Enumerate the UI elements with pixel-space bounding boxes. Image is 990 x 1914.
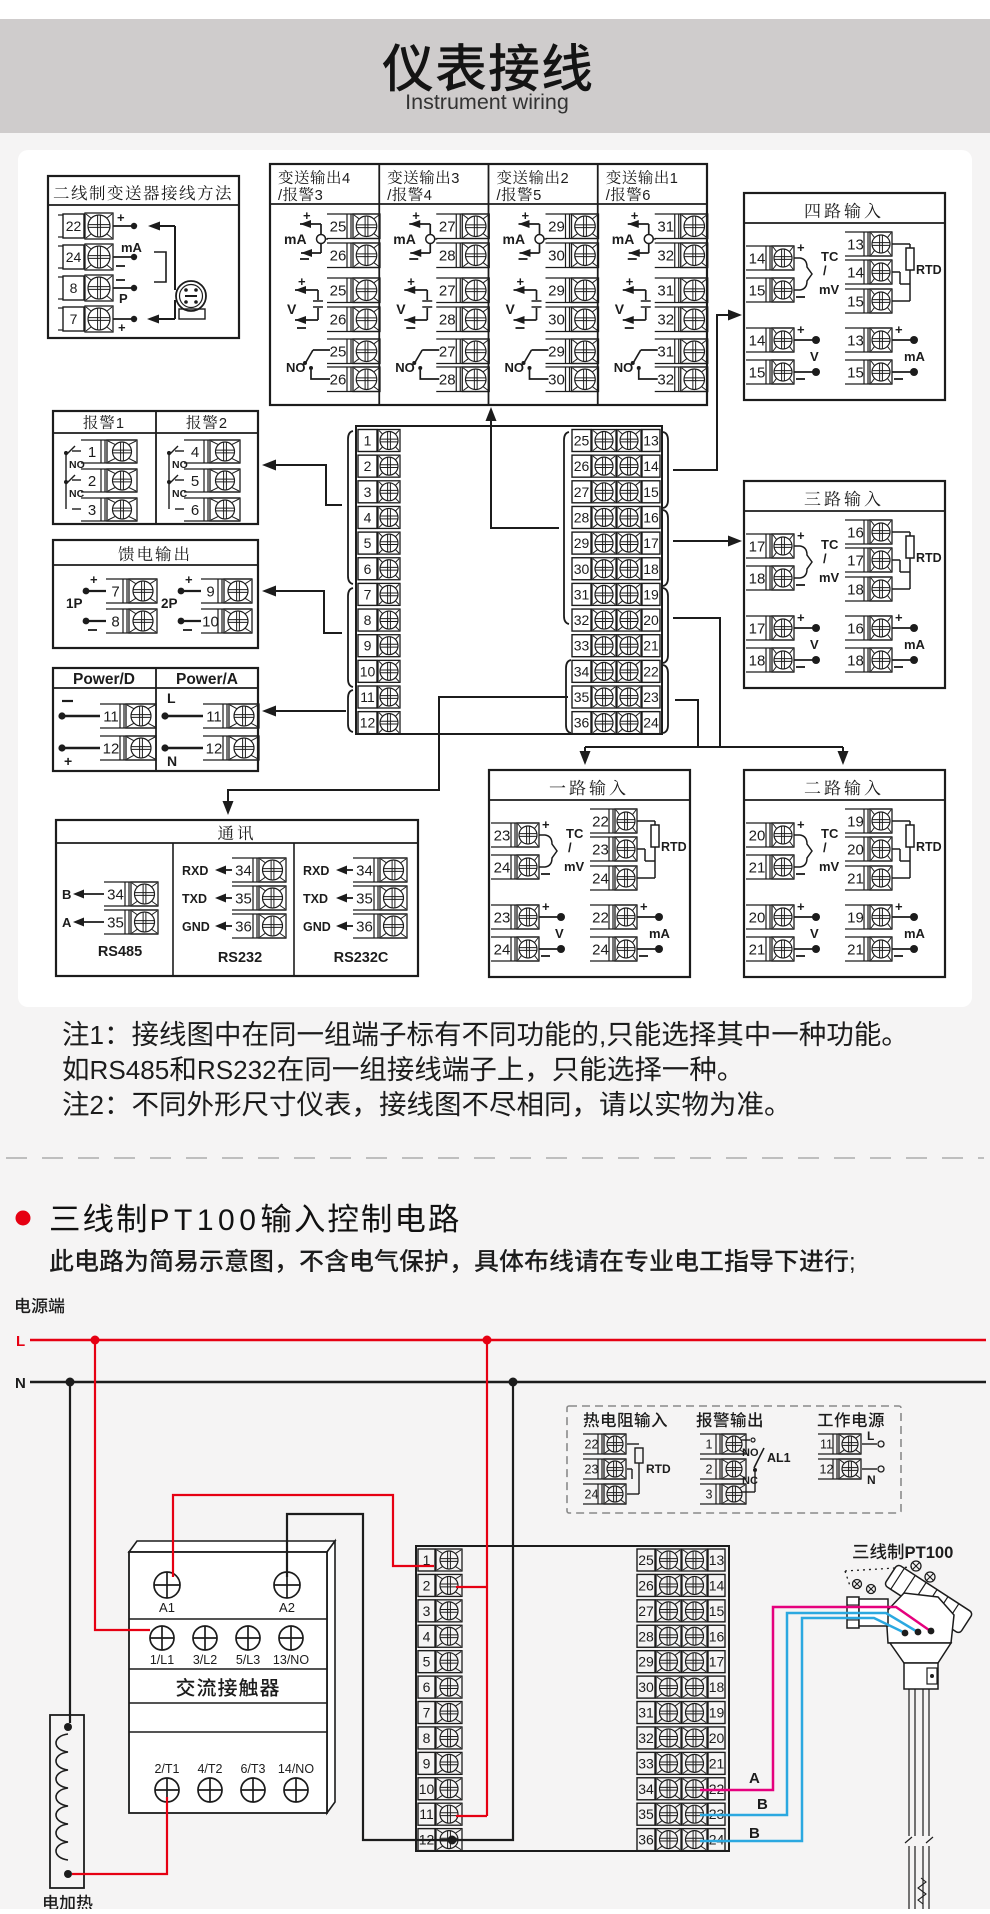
svg-text:25: 25 bbox=[330, 344, 347, 361]
svg-text:PT100: PT100 bbox=[150, 1204, 261, 1237]
svg-text:6: 6 bbox=[423, 1679, 431, 1695]
svg-text:2: 2 bbox=[423, 1577, 431, 1593]
svg-text:+: + bbox=[797, 817, 805, 832]
svg-text:RS485: RS485 bbox=[90, 1055, 170, 1085]
svg-text:28: 28 bbox=[439, 312, 456, 329]
svg-text:2/T1: 2/T1 bbox=[154, 1762, 179, 1776]
svg-text:8: 8 bbox=[423, 1730, 431, 1746]
svg-text:11: 11 bbox=[419, 1806, 434, 1822]
svg-text:15: 15 bbox=[847, 364, 864, 381]
svg-text:6: 6 bbox=[191, 502, 199, 519]
svg-text:+: + bbox=[117, 210, 125, 225]
svg-text:mA: mA bbox=[649, 926, 671, 941]
svg-text:18: 18 bbox=[709, 1679, 725, 1695]
svg-text:20: 20 bbox=[709, 1730, 725, 1746]
svg-text:mA: mA bbox=[121, 240, 143, 255]
svg-text:TC: TC bbox=[821, 826, 839, 841]
svg-text:18: 18 bbox=[643, 561, 659, 577]
svg-text:1: 1 bbox=[88, 444, 96, 461]
svg-text:B: B bbox=[757, 1796, 768, 1813]
svg-text:32: 32 bbox=[574, 612, 590, 628]
svg-text:12: 12 bbox=[103, 740, 120, 757]
svg-text:24: 24 bbox=[494, 859, 511, 876]
svg-text:RS485: RS485 bbox=[98, 944, 142, 960]
svg-text:+: + bbox=[90, 572, 98, 587]
svg-text:/: / bbox=[278, 188, 283, 204]
svg-text:31: 31 bbox=[657, 283, 674, 300]
svg-text:NO: NO bbox=[172, 459, 188, 471]
svg-text:17: 17 bbox=[709, 1654, 725, 1670]
svg-text:28: 28 bbox=[439, 372, 456, 389]
svg-text:L: L bbox=[167, 690, 176, 706]
svg-text:3: 3 bbox=[88, 502, 96, 519]
svg-text:24: 24 bbox=[494, 941, 511, 958]
svg-text:11: 11 bbox=[820, 1438, 833, 1452]
svg-text:4: 4 bbox=[342, 171, 351, 187]
svg-text:mA: mA bbox=[904, 926, 926, 941]
svg-text:17: 17 bbox=[749, 538, 766, 555]
svg-text:2P: 2P bbox=[161, 596, 178, 611]
svg-text:1: 1 bbox=[90, 1020, 105, 1050]
svg-text:27: 27 bbox=[574, 484, 590, 500]
svg-text:10: 10 bbox=[360, 663, 376, 679]
svg-text:/: / bbox=[606, 188, 611, 204]
svg-text:/: / bbox=[497, 188, 502, 204]
svg-text:4: 4 bbox=[424, 188, 433, 204]
svg-text:GND: GND bbox=[303, 920, 331, 934]
svg-text:+: + bbox=[412, 208, 420, 223]
svg-text:3/L2: 3/L2 bbox=[193, 1653, 217, 1667]
svg-text:+: + bbox=[797, 528, 805, 543]
svg-text:7: 7 bbox=[423, 1705, 431, 1721]
svg-text:RTD: RTD bbox=[916, 551, 942, 565]
svg-text:3: 3 bbox=[706, 1488, 713, 1502]
svg-text:31: 31 bbox=[638, 1705, 654, 1721]
svg-text:32: 32 bbox=[657, 372, 674, 389]
svg-text:9: 9 bbox=[364, 638, 372, 654]
svg-text:RTD: RTD bbox=[916, 840, 942, 854]
svg-text:7: 7 bbox=[111, 583, 119, 600]
svg-text:16: 16 bbox=[709, 1628, 725, 1644]
svg-text:8: 8 bbox=[111, 613, 119, 630]
svg-text:24: 24 bbox=[585, 1488, 599, 1502]
svg-text:11: 11 bbox=[206, 708, 222, 725]
svg-text:4/T2: 4/T2 bbox=[197, 1762, 222, 1776]
svg-text:TXD: TXD bbox=[303, 892, 328, 906]
svg-text:30: 30 bbox=[548, 248, 565, 265]
svg-text:26: 26 bbox=[638, 1577, 654, 1593]
svg-text:17: 17 bbox=[749, 620, 766, 637]
svg-text:6: 6 bbox=[642, 188, 651, 204]
svg-text:,: , bbox=[599, 1020, 606, 1050]
svg-text:+: + bbox=[797, 899, 805, 914]
svg-text:mV: mV bbox=[564, 859, 585, 874]
svg-text:+: + bbox=[118, 320, 126, 335]
svg-text:29: 29 bbox=[548, 219, 565, 236]
svg-text:29: 29 bbox=[574, 535, 590, 551]
svg-text:V: V bbox=[555, 926, 564, 941]
svg-text:21: 21 bbox=[749, 859, 766, 876]
svg-text:15: 15 bbox=[643, 484, 659, 500]
svg-text:V: V bbox=[615, 301, 625, 317]
svg-text:23: 23 bbox=[592, 841, 609, 858]
svg-text:V: V bbox=[396, 301, 406, 317]
svg-text:26: 26 bbox=[330, 312, 347, 329]
svg-text:34: 34 bbox=[107, 886, 124, 903]
svg-text:2: 2 bbox=[88, 473, 96, 490]
svg-text:30: 30 bbox=[548, 312, 565, 329]
svg-text:17: 17 bbox=[643, 535, 659, 551]
svg-text:25: 25 bbox=[638, 1552, 654, 1568]
svg-text:TC: TC bbox=[821, 249, 839, 264]
svg-text:+: + bbox=[626, 274, 634, 289]
svg-text:24: 24 bbox=[709, 1832, 725, 1848]
svg-text:22: 22 bbox=[592, 813, 609, 830]
svg-text:+: + bbox=[895, 322, 903, 337]
svg-text:28: 28 bbox=[439, 248, 456, 265]
svg-text:1: 1 bbox=[116, 416, 125, 432]
svg-text:36: 36 bbox=[235, 918, 252, 935]
svg-text:N: N bbox=[867, 1473, 876, 1487]
svg-text:+: + bbox=[640, 899, 648, 914]
svg-text:14: 14 bbox=[709, 1577, 725, 1593]
svg-text:30: 30 bbox=[574, 561, 590, 577]
svg-text:36: 36 bbox=[638, 1832, 654, 1848]
svg-text:+: + bbox=[517, 274, 525, 289]
svg-text:/: / bbox=[387, 188, 392, 204]
svg-text:22: 22 bbox=[643, 663, 659, 679]
svg-text:24: 24 bbox=[592, 941, 609, 958]
svg-text:10: 10 bbox=[202, 613, 219, 630]
svg-text:A: A bbox=[62, 915, 72, 930]
svg-text:V: V bbox=[506, 301, 516, 317]
svg-text:V: V bbox=[810, 926, 819, 941]
svg-text:RXD: RXD bbox=[182, 864, 208, 878]
svg-text:28: 28 bbox=[638, 1628, 654, 1644]
svg-text:3: 3 bbox=[423, 1603, 431, 1619]
svg-text:23: 23 bbox=[643, 689, 659, 705]
svg-text:mA: mA bbox=[904, 637, 926, 652]
svg-text:B: B bbox=[62, 887, 71, 902]
svg-text:NO: NO bbox=[505, 360, 525, 375]
svg-text:+: + bbox=[303, 208, 311, 223]
svg-text:32: 32 bbox=[638, 1730, 654, 1746]
svg-text:25: 25 bbox=[330, 219, 347, 236]
svg-text:TC: TC bbox=[566, 826, 584, 841]
svg-text:10: 10 bbox=[419, 1781, 435, 1797]
svg-text:16: 16 bbox=[847, 620, 864, 637]
svg-text:22: 22 bbox=[585, 1438, 599, 1452]
svg-text:RS232C: RS232C bbox=[334, 950, 389, 966]
svg-text:+: + bbox=[542, 899, 550, 914]
svg-text:+: + bbox=[185, 572, 193, 587]
svg-text:27: 27 bbox=[439, 283, 456, 300]
svg-text:14: 14 bbox=[643, 458, 659, 474]
svg-text:/: / bbox=[823, 263, 827, 278]
svg-text:/: / bbox=[568, 840, 572, 855]
svg-text:13: 13 bbox=[643, 433, 659, 449]
svg-text:36: 36 bbox=[574, 715, 590, 731]
svg-text:20: 20 bbox=[847, 841, 864, 858]
svg-text:4: 4 bbox=[423, 1628, 431, 1644]
svg-text:2: 2 bbox=[364, 458, 372, 474]
svg-text:18: 18 bbox=[749, 570, 766, 587]
svg-text:+: + bbox=[522, 208, 530, 223]
svg-text:A1: A1 bbox=[159, 1600, 175, 1615]
svg-text:16: 16 bbox=[847, 524, 864, 541]
svg-text:P: P bbox=[119, 291, 128, 306]
svg-text:1: 1 bbox=[706, 1438, 713, 1452]
svg-text:21: 21 bbox=[749, 941, 766, 958]
svg-text:29: 29 bbox=[638, 1654, 654, 1670]
svg-text:4: 4 bbox=[364, 509, 372, 525]
svg-text:NO: NO bbox=[395, 360, 415, 375]
svg-text:/: / bbox=[823, 840, 827, 855]
svg-text:25: 25 bbox=[330, 283, 347, 300]
svg-text:35: 35 bbox=[356, 890, 373, 907]
svg-text:1: 1 bbox=[364, 433, 372, 449]
svg-text:23: 23 bbox=[494, 827, 511, 844]
svg-text:5: 5 bbox=[364, 535, 372, 551]
svg-text:L: L bbox=[16, 1333, 25, 1350]
svg-text:18: 18 bbox=[847, 652, 864, 669]
svg-text:1: 1 bbox=[670, 171, 679, 187]
svg-text:NO: NO bbox=[614, 360, 634, 375]
svg-text:20: 20 bbox=[643, 612, 659, 628]
svg-text:12: 12 bbox=[360, 715, 376, 731]
svg-text:15: 15 bbox=[847, 293, 864, 310]
svg-text:+: + bbox=[407, 274, 415, 289]
svg-text:PT100: PT100 bbox=[905, 1543, 954, 1562]
svg-text:Power/A: Power/A bbox=[176, 671, 238, 688]
svg-text:NO: NO bbox=[69, 459, 85, 471]
svg-text:13: 13 bbox=[709, 1552, 725, 1568]
svg-text:15: 15 bbox=[749, 364, 766, 381]
svg-text:31: 31 bbox=[574, 586, 590, 602]
svg-text:21: 21 bbox=[847, 941, 864, 958]
svg-text:GND: GND bbox=[182, 920, 210, 934]
svg-text:5: 5 bbox=[533, 188, 542, 204]
svg-text:24: 24 bbox=[643, 715, 659, 731]
svg-text:mA: mA bbox=[393, 231, 416, 247]
svg-text:13: 13 bbox=[847, 332, 864, 349]
svg-text:mV: mV bbox=[819, 570, 840, 585]
svg-text:19: 19 bbox=[847, 813, 864, 830]
svg-text:2: 2 bbox=[90, 1090, 105, 1120]
svg-text:32: 32 bbox=[657, 248, 674, 265]
svg-text:14: 14 bbox=[749, 332, 766, 349]
svg-text:A2: A2 bbox=[279, 1600, 295, 1615]
svg-text:29: 29 bbox=[548, 344, 565, 361]
svg-text:27: 27 bbox=[439, 219, 456, 236]
svg-text:RTD: RTD bbox=[661, 840, 687, 854]
svg-text:36: 36 bbox=[356, 918, 373, 935]
svg-text:14/NO: 14/NO bbox=[278, 1762, 314, 1776]
svg-text:V: V bbox=[287, 301, 297, 317]
svg-text:5/L3: 5/L3 bbox=[236, 1653, 260, 1667]
svg-text:19: 19 bbox=[709, 1705, 725, 1721]
svg-text:+: + bbox=[895, 610, 903, 625]
svg-text:mA: mA bbox=[503, 231, 526, 247]
svg-text:3: 3 bbox=[315, 188, 324, 204]
svg-text:15: 15 bbox=[709, 1603, 725, 1619]
svg-text:21: 21 bbox=[643, 638, 659, 654]
svg-text:5: 5 bbox=[423, 1654, 431, 1670]
svg-text:2: 2 bbox=[706, 1463, 713, 1477]
svg-text:8: 8 bbox=[364, 612, 372, 628]
svg-text:13/NO: 13/NO bbox=[273, 1653, 309, 1667]
svg-text:N: N bbox=[15, 1375, 26, 1392]
svg-text:3: 3 bbox=[451, 171, 460, 187]
svg-text:8: 8 bbox=[70, 280, 78, 296]
svg-text:2: 2 bbox=[219, 416, 228, 432]
svg-text:19: 19 bbox=[643, 586, 659, 602]
svg-text:20: 20 bbox=[749, 827, 766, 844]
svg-text:30: 30 bbox=[548, 372, 565, 389]
svg-text:+: + bbox=[797, 240, 805, 255]
svg-text:22: 22 bbox=[592, 909, 609, 926]
svg-text:RTD: RTD bbox=[916, 263, 942, 277]
svg-text:mV: mV bbox=[819, 859, 840, 874]
svg-text:1/L1: 1/L1 bbox=[150, 1653, 174, 1667]
svg-text:mA: mA bbox=[284, 231, 307, 247]
svg-text:9: 9 bbox=[423, 1755, 431, 1771]
svg-text:;: ; bbox=[849, 1249, 856, 1276]
svg-text:30: 30 bbox=[638, 1679, 654, 1695]
svg-text:17: 17 bbox=[847, 552, 864, 569]
svg-text:34: 34 bbox=[638, 1781, 654, 1797]
svg-text:35: 35 bbox=[107, 914, 124, 931]
svg-text:mA: mA bbox=[612, 231, 635, 247]
svg-text:1P: 1P bbox=[66, 596, 83, 611]
svg-text:23: 23 bbox=[585, 1463, 599, 1477]
svg-text:34: 34 bbox=[574, 663, 590, 679]
svg-text:35: 35 bbox=[638, 1806, 654, 1822]
svg-text:/: / bbox=[823, 551, 827, 566]
svg-text:11: 11 bbox=[103, 708, 119, 725]
svg-text:29: 29 bbox=[548, 283, 565, 300]
svg-text:13: 13 bbox=[847, 236, 864, 253]
svg-text:+: + bbox=[631, 208, 639, 223]
svg-text:+: + bbox=[895, 899, 903, 914]
svg-text:RXD: RXD bbox=[303, 864, 329, 878]
svg-text:26: 26 bbox=[330, 372, 347, 389]
svg-text:33: 33 bbox=[574, 638, 590, 654]
svg-text:L: L bbox=[867, 1429, 874, 1443]
svg-text:27: 27 bbox=[439, 344, 456, 361]
svg-text:11: 11 bbox=[360, 689, 375, 705]
svg-text:24: 24 bbox=[66, 249, 82, 265]
svg-text:23: 23 bbox=[494, 909, 511, 926]
svg-text:19: 19 bbox=[847, 909, 864, 926]
svg-text:A: A bbox=[749, 1770, 760, 1787]
svg-text:12: 12 bbox=[206, 740, 223, 757]
svg-text:RS232: RS232 bbox=[218, 950, 262, 966]
svg-text:21: 21 bbox=[709, 1755, 725, 1771]
svg-text:mV: mV bbox=[819, 282, 840, 297]
svg-text:33: 33 bbox=[638, 1755, 654, 1771]
svg-text:35: 35 bbox=[574, 689, 590, 705]
svg-text:24: 24 bbox=[592, 870, 609, 887]
svg-text:18: 18 bbox=[847, 581, 864, 598]
svg-text:7: 7 bbox=[70, 311, 78, 327]
svg-text:35: 35 bbox=[235, 890, 252, 907]
svg-text:14: 14 bbox=[847, 264, 864, 281]
svg-text:Instrument wiring: Instrument wiring bbox=[405, 90, 569, 114]
svg-text:34: 34 bbox=[235, 862, 252, 879]
svg-text:NO: NO bbox=[742, 1447, 759, 1459]
svg-text:NC: NC bbox=[69, 488, 85, 500]
svg-text:18: 18 bbox=[749, 652, 766, 669]
svg-text:+: + bbox=[64, 753, 72, 769]
svg-text:9: 9 bbox=[206, 583, 214, 600]
svg-text:15: 15 bbox=[749, 282, 766, 299]
svg-text:5: 5 bbox=[191, 473, 199, 490]
svg-text:RS232: RS232 bbox=[197, 1055, 277, 1085]
svg-text:mA: mA bbox=[904, 349, 926, 364]
svg-text:28: 28 bbox=[574, 509, 590, 525]
svg-text:NO: NO bbox=[286, 360, 306, 375]
svg-text:3: 3 bbox=[364, 484, 372, 500]
svg-text:34: 34 bbox=[356, 862, 373, 879]
svg-text:31: 31 bbox=[657, 344, 674, 361]
svg-text:26: 26 bbox=[330, 248, 347, 265]
svg-text:B: B bbox=[749, 1825, 760, 1842]
svg-text:Power/D: Power/D bbox=[73, 671, 135, 688]
svg-text:6: 6 bbox=[364, 561, 372, 577]
svg-text:NC: NC bbox=[172, 488, 188, 500]
svg-text:25: 25 bbox=[574, 433, 590, 449]
svg-text:32: 32 bbox=[657, 312, 674, 329]
svg-text:7: 7 bbox=[364, 586, 372, 602]
svg-text:2: 2 bbox=[561, 171, 570, 187]
svg-text:V: V bbox=[810, 637, 819, 652]
svg-text:+: + bbox=[542, 817, 550, 832]
svg-text:22: 22 bbox=[66, 218, 82, 234]
svg-text:4: 4 bbox=[191, 444, 199, 461]
svg-text:V: V bbox=[810, 349, 819, 364]
svg-text:6/T3: 6/T3 bbox=[240, 1762, 265, 1776]
svg-text:12: 12 bbox=[820, 1463, 834, 1477]
svg-text:+: + bbox=[797, 610, 805, 625]
svg-text:26: 26 bbox=[574, 458, 590, 474]
svg-text:TXD: TXD bbox=[182, 892, 207, 906]
svg-text:+: + bbox=[298, 274, 306, 289]
svg-text:31: 31 bbox=[657, 219, 674, 236]
svg-text:AL1: AL1 bbox=[767, 1451, 791, 1465]
svg-text:21: 21 bbox=[847, 870, 864, 887]
svg-text:27: 27 bbox=[638, 1603, 654, 1619]
svg-text:16: 16 bbox=[643, 509, 659, 525]
svg-text:RTD: RTD bbox=[646, 1462, 671, 1476]
svg-text:14: 14 bbox=[749, 250, 766, 267]
svg-text:TC: TC bbox=[821, 537, 839, 552]
svg-text:N: N bbox=[167, 753, 177, 769]
svg-text:+: + bbox=[797, 322, 805, 337]
svg-text:20: 20 bbox=[749, 909, 766, 926]
